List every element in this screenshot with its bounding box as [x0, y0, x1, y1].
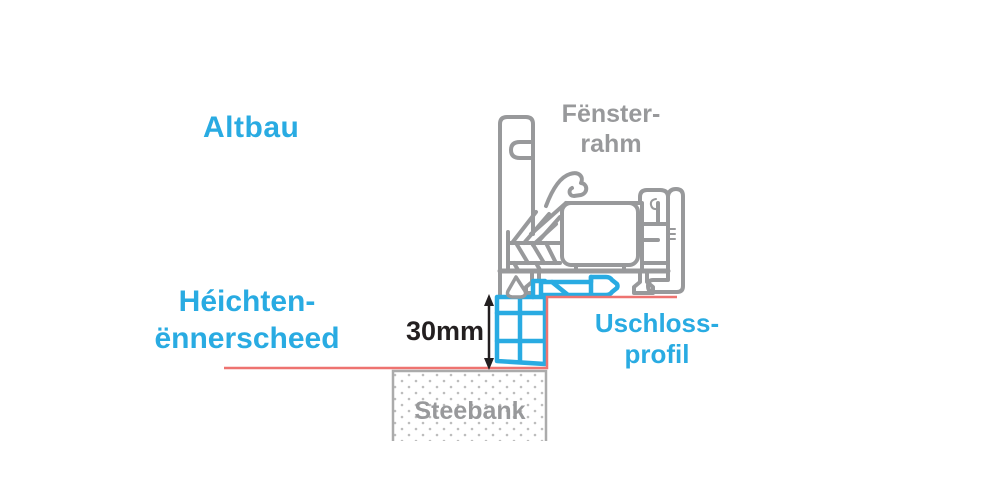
gasket-drop [508, 277, 526, 297]
label-height-difference-line1: Héichten- [123, 283, 371, 320]
label-window-sill: Steebank [394, 397, 546, 426]
label-connection-profile-line2: profil [577, 339, 737, 370]
label-building-type: Altbau [203, 111, 299, 145]
label-connection-profile-line1: Uschloss- [577, 308, 737, 339]
label-window-frame-line2: rahm [538, 129, 684, 159]
label-dimension-30mm: 30mm [406, 316, 484, 347]
label-window-frame-line1: Fënster- [538, 99, 684, 129]
window-installation-diagram: Altbau Fënster- rahm Héichten- ënnersche… [0, 0, 1000, 500]
label-connection-profile: Uschloss- profil [577, 308, 737, 370]
dimension-arrow [484, 294, 494, 370]
label-height-difference-line2: ënnerscheed [123, 320, 371, 357]
label-window-frame: Fënster- rahm [538, 99, 684, 159]
label-height-difference: Héichten- ënnerscheed [123, 283, 371, 357]
